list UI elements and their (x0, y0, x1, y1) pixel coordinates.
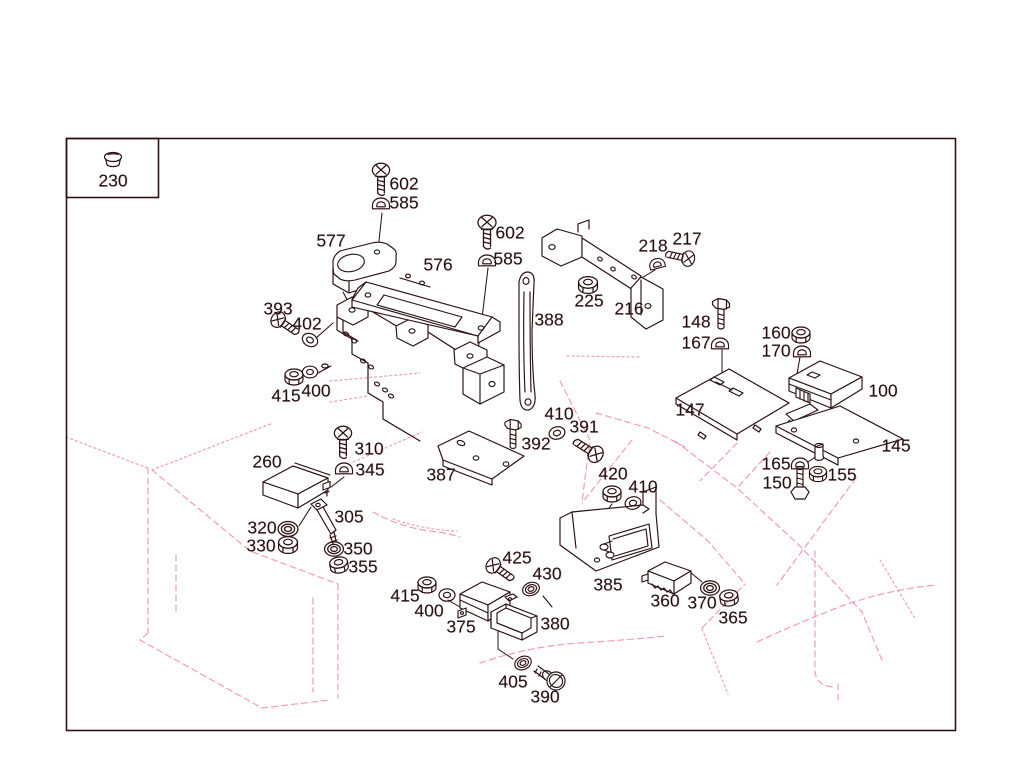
part-label-402[interactable]: 402 (292, 315, 321, 333)
part-label-370[interactable]: 370 (687, 594, 716, 612)
parts-diagram-page: 2306025855775766025852182172252163883934… (0, 0, 1024, 781)
part-label-217[interactable]: 217 (672, 230, 701, 248)
part-label-170[interactable]: 170 (761, 342, 790, 360)
part-label-218[interactable]: 218 (638, 237, 667, 255)
part-label-345[interactable]: 345 (355, 461, 384, 479)
part-label-155[interactable]: 155 (827, 466, 856, 484)
part-label-430[interactable]: 430 (532, 565, 561, 583)
part-label-585[interactable]: 585 (389, 194, 418, 212)
part-label-388[interactable]: 388 (534, 311, 563, 329)
part-label-355[interactable]: 355 (348, 558, 377, 576)
part-label-391[interactable]: 391 (569, 418, 598, 436)
part-label-576[interactable]: 576 (423, 256, 452, 274)
part-label-230[interactable]: 230 (98, 172, 127, 190)
part-label-310[interactable]: 310 (354, 440, 383, 458)
diagram-labels: 2306025855775766025852182172252163883934… (0, 0, 1024, 781)
part-label-415[interactable]: 415 (271, 387, 300, 405)
part-label-410-2[interactable]: 410 (628, 478, 657, 496)
part-label-160[interactable]: 160 (761, 324, 790, 342)
part-label-225[interactable]: 225 (574, 292, 603, 310)
part-label-385[interactable]: 385 (593, 576, 622, 594)
part-label-577[interactable]: 577 (316, 232, 345, 250)
part-label-320[interactable]: 320 (247, 519, 276, 537)
part-label-350[interactable]: 350 (343, 540, 372, 558)
part-label-380[interactable]: 380 (540, 615, 569, 633)
part-label-260[interactable]: 260 (252, 453, 281, 471)
part-label-360[interactable]: 360 (650, 592, 679, 610)
part-label-400-2[interactable]: 400 (414, 602, 443, 620)
part-label-392[interactable]: 392 (521, 435, 550, 453)
part-label-147[interactable]: 147 (675, 401, 704, 419)
part-label-425[interactable]: 425 (502, 549, 531, 567)
part-label-330[interactable]: 330 (246, 537, 275, 555)
part-label-390[interactable]: 390 (530, 688, 559, 706)
part-label-148[interactable]: 148 (681, 313, 710, 331)
part-label-387[interactable]: 387 (426, 466, 455, 484)
part-label-100[interactable]: 100 (868, 382, 897, 400)
part-label-585-2[interactable]: 585 (493, 250, 522, 268)
part-label-405[interactable]: 405 (498, 673, 527, 691)
part-label-150[interactable]: 150 (762, 474, 791, 492)
part-label-305[interactable]: 305 (334, 508, 363, 526)
part-label-167[interactable]: 167 (681, 334, 710, 352)
part-label-400[interactable]: 400 (301, 382, 330, 400)
part-label-393[interactable]: 393 (263, 300, 292, 318)
part-label-375[interactable]: 375 (446, 618, 475, 636)
part-label-602-2[interactable]: 602 (495, 224, 524, 242)
part-label-602[interactable]: 602 (389, 175, 418, 193)
part-label-420[interactable]: 420 (598, 465, 627, 483)
part-label-365[interactable]: 365 (718, 609, 747, 627)
part-label-145[interactable]: 145 (881, 437, 910, 455)
part-label-165[interactable]: 165 (761, 455, 790, 473)
part-label-216[interactable]: 216 (614, 300, 643, 318)
